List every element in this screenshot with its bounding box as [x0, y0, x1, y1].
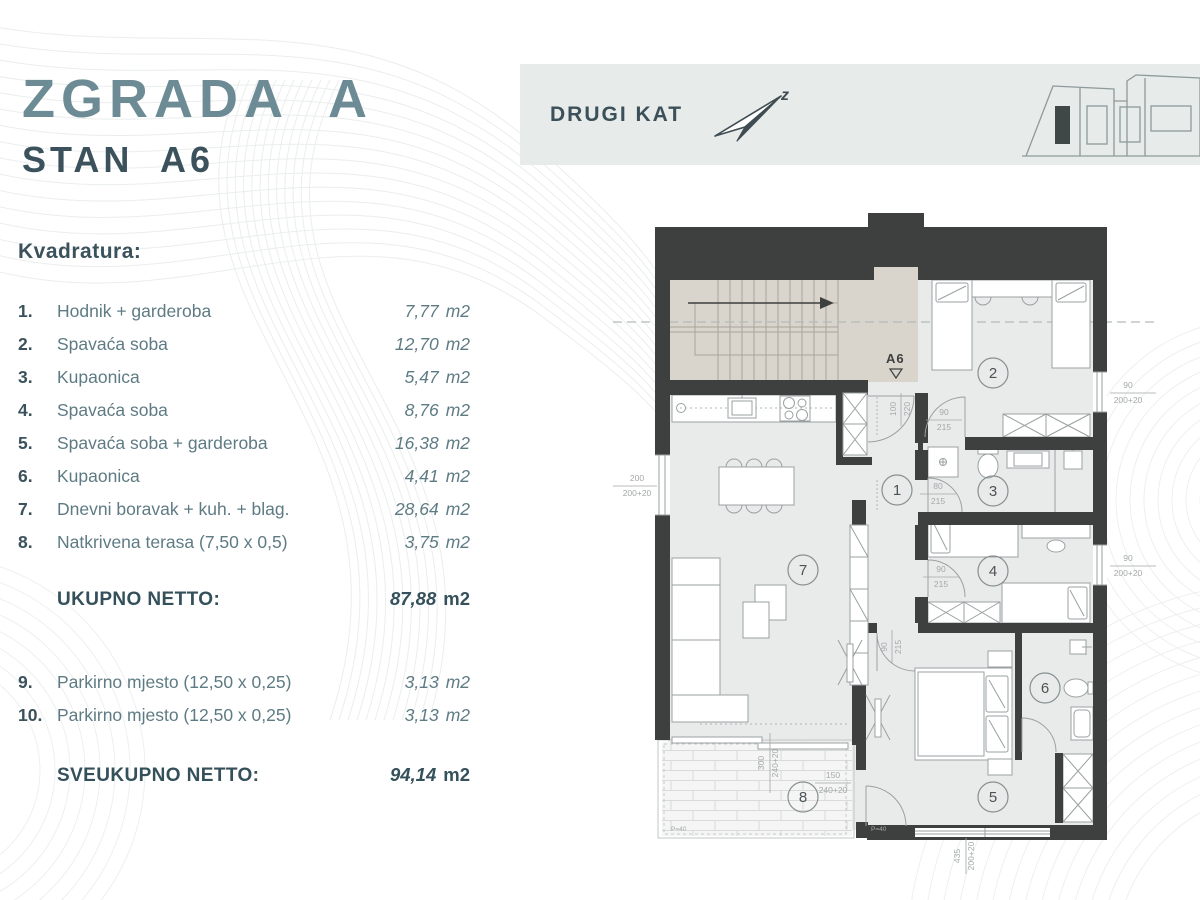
areas-heading: Kvadratura:	[18, 240, 141, 264]
shaft	[843, 393, 867, 455]
svg-text:8: 8	[799, 789, 807, 806]
entry-label: A6	[886, 351, 905, 366]
floor-plan: A6 1 2 3 4 5 6 7 8 200 200+20 90 200+20 …	[605, 195, 1200, 900]
area-row: 3.Kupaonica5,47m2	[18, 367, 470, 400]
floor-banner: DRUGI KAT z	[520, 64, 1200, 165]
parking-table: 9.Parkirno mjesto (12,50 x 0,25)3,13m2 1…	[18, 672, 470, 738]
area-row: 1.Hodnik + garderoba7,77m2	[18, 301, 470, 334]
row-value: 3,13m2	[405, 672, 470, 693]
dim-left-window: 200 200+20	[613, 473, 657, 498]
building-elevation-icon	[1022, 64, 1200, 165]
row-value: 4,41m2	[405, 466, 470, 487]
wardrobe	[1003, 414, 1090, 437]
row-number: 6.	[18, 466, 57, 487]
floor-fills	[658, 267, 1093, 838]
dim-right-window2: 90 200+20	[1110, 553, 1156, 578]
row-value: 8,76m2	[405, 400, 470, 421]
svg-text:240+20: 240+20	[770, 748, 780, 777]
row-number: 5.	[18, 433, 57, 454]
row-number: 9.	[18, 672, 57, 693]
row-number: 10.	[18, 705, 57, 726]
row-number: 1.	[18, 301, 57, 322]
total-label: SVEUKUPNO NETTO:	[57, 765, 390, 787]
row-value: 12,70m2	[395, 334, 470, 355]
nightstand	[972, 280, 1052, 297]
area-row: 8.Natkrivena terasa (7,50 x 0,5)3,75m2	[18, 532, 470, 565]
svg-text:200+20: 200+20	[966, 841, 976, 870]
row-label: Spavaća soba	[57, 334, 395, 355]
svg-text:90: 90	[1123, 553, 1133, 563]
row-label: Spavaća soba + garderoba	[57, 433, 395, 454]
wardrobe	[928, 602, 1000, 623]
left-window	[655, 455, 670, 515]
dim-right-window1: 90 200+20	[1110, 380, 1156, 405]
nightstand	[988, 759, 1012, 775]
svg-text:5: 5	[989, 789, 997, 806]
svg-text:3: 3	[989, 483, 997, 500]
stairwell-floor	[660, 280, 918, 382]
svg-text:80: 80	[933, 481, 943, 491]
svg-text:220: 220	[902, 402, 912, 416]
row-label: Natkrivena terasa (7,50 x 0,5)	[57, 532, 405, 553]
dim-bottom-window: 435 200+20	[952, 838, 976, 874]
row-number: 2.	[18, 334, 57, 355]
area-row: 5.Spavaća soba + garderoba16,38m2	[18, 433, 470, 466]
area-row: 2.Spavaća soba12,70m2	[18, 334, 470, 367]
toilet	[1064, 679, 1088, 697]
chair	[1047, 540, 1065, 552]
svg-text:200: 200	[630, 473, 644, 483]
bedroom5-furniture	[915, 651, 1012, 775]
dim-p-right: P=40	[871, 826, 887, 833]
dining-table	[719, 459, 794, 513]
row-number: 4.	[18, 400, 57, 421]
row-label: Parkirno mjesto (12,50 x 0,25)	[57, 672, 405, 693]
svg-text:90: 90	[936, 564, 946, 574]
wardrobe	[1063, 754, 1093, 822]
svg-text:4: 4	[989, 563, 997, 580]
subtotal-row: UKUPNO NETTO: 87,88m2	[18, 588, 470, 611]
svg-text:200+20: 200+20	[1114, 568, 1143, 578]
svg-text:z: z	[780, 87, 789, 104]
row-value: 28,64m2	[395, 499, 470, 520]
svg-text:90: 90	[879, 642, 889, 652]
row-label: Kupaonica	[57, 466, 405, 487]
bottom-window-room5	[915, 828, 1050, 837]
row-label: Spavaća soba	[57, 400, 405, 421]
svg-text:7: 7	[799, 562, 807, 579]
area-row: 4.Spavaća soba8,76m2	[18, 400, 470, 433]
area-table: 1.Hodnik + garderoba7,77m2 2.Spavaća sob…	[18, 301, 470, 565]
svg-text:6: 6	[1041, 680, 1049, 697]
area-row: 7.Dnevni boravak + kuh. + blag.28,64m2	[18, 499, 470, 532]
row-value: 3,13m2	[405, 705, 470, 726]
subtotal-value: 87,88m2	[390, 588, 470, 610]
row-label: Parkirno mjesto (12,50 x 0,25)	[57, 705, 405, 726]
building-title: ZGRADA A	[22, 72, 373, 126]
row-value: 16,38m2	[395, 433, 470, 454]
svg-text:215: 215	[937, 422, 951, 432]
svg-text:200+20: 200+20	[623, 488, 652, 498]
north-arrow-icon: z	[709, 86, 793, 144]
row-label: Kupaonica	[57, 367, 405, 388]
row-number: 3.	[18, 367, 57, 388]
total-value: 94,14m2	[390, 764, 470, 786]
row-number: 8.	[18, 532, 57, 553]
svg-text:215: 215	[893, 640, 903, 654]
right-window-room2	[1093, 372, 1107, 412]
svg-text:200+20: 200+20	[1114, 395, 1143, 405]
title-block: ZGRADA A STAN A6	[22, 72, 373, 178]
area-row: 6.Kupaonica4,41m2	[18, 466, 470, 499]
vanity	[1007, 451, 1049, 468]
washing-machine	[1064, 451, 1082, 469]
svg-text:240+20: 240+20	[819, 785, 848, 795]
floor-label: DRUGI KAT	[550, 103, 683, 127]
svg-text:90: 90	[939, 407, 949, 417]
svg-text:300: 300	[756, 756, 766, 770]
toilet	[978, 454, 998, 478]
row-value: 5,47m2	[405, 367, 470, 388]
row-value: 3,75m2	[405, 532, 470, 553]
row-label: Dnevni boravak + kuh. + blag.	[57, 499, 395, 520]
svg-text:435: 435	[952, 849, 962, 863]
row-label: Hodnik + garderoba	[57, 301, 405, 322]
svg-text:100: 100	[888, 402, 898, 416]
total-row: SVEUKUPNO NETTO: 94,14m2	[18, 764, 470, 787]
parking-row: 10.Parkirno mjesto (12,50 x 0,25)3,13m2	[18, 705, 470, 738]
svg-text:1: 1	[893, 482, 901, 499]
svg-text:90: 90	[1123, 380, 1133, 390]
parking-row: 9.Parkirno mjesto (12,50 x 0,25)3,13m2	[18, 672, 470, 705]
nightstand	[988, 651, 1012, 667]
dim-p-left: P=40	[671, 826, 687, 833]
kitchen-counter	[672, 392, 836, 422]
svg-text:2: 2	[989, 365, 997, 382]
subtotal-label: UKUPNO NETTO:	[57, 589, 390, 611]
svg-text:150: 150	[826, 770, 840, 780]
row-value: 7,77m2	[405, 301, 470, 322]
right-window-room4	[1093, 545, 1107, 585]
apartment-title: STAN A6	[22, 142, 373, 178]
row-number: 7.	[18, 499, 57, 520]
stair-bump-floor	[874, 267, 918, 281]
svg-text:215: 215	[934, 579, 948, 589]
svg-text:215: 215	[931, 496, 945, 506]
